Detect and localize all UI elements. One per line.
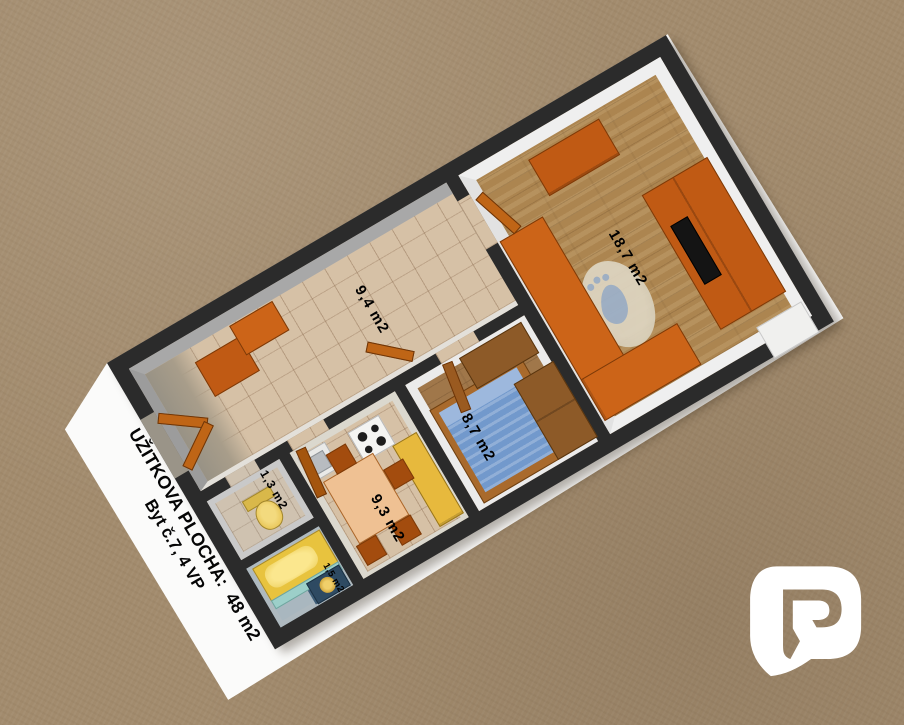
footprint-toe-2 bbox=[592, 275, 602, 285]
footprint-toe-1 bbox=[586, 283, 596, 293]
footprint-toe-3 bbox=[601, 273, 611, 283]
r-logo bbox=[744, 562, 866, 678]
background-scene: 18,7 m2 9,4 m2 8,7 m2 9,3 m2 1,3 m2 1,5 … bbox=[0, 0, 904, 725]
